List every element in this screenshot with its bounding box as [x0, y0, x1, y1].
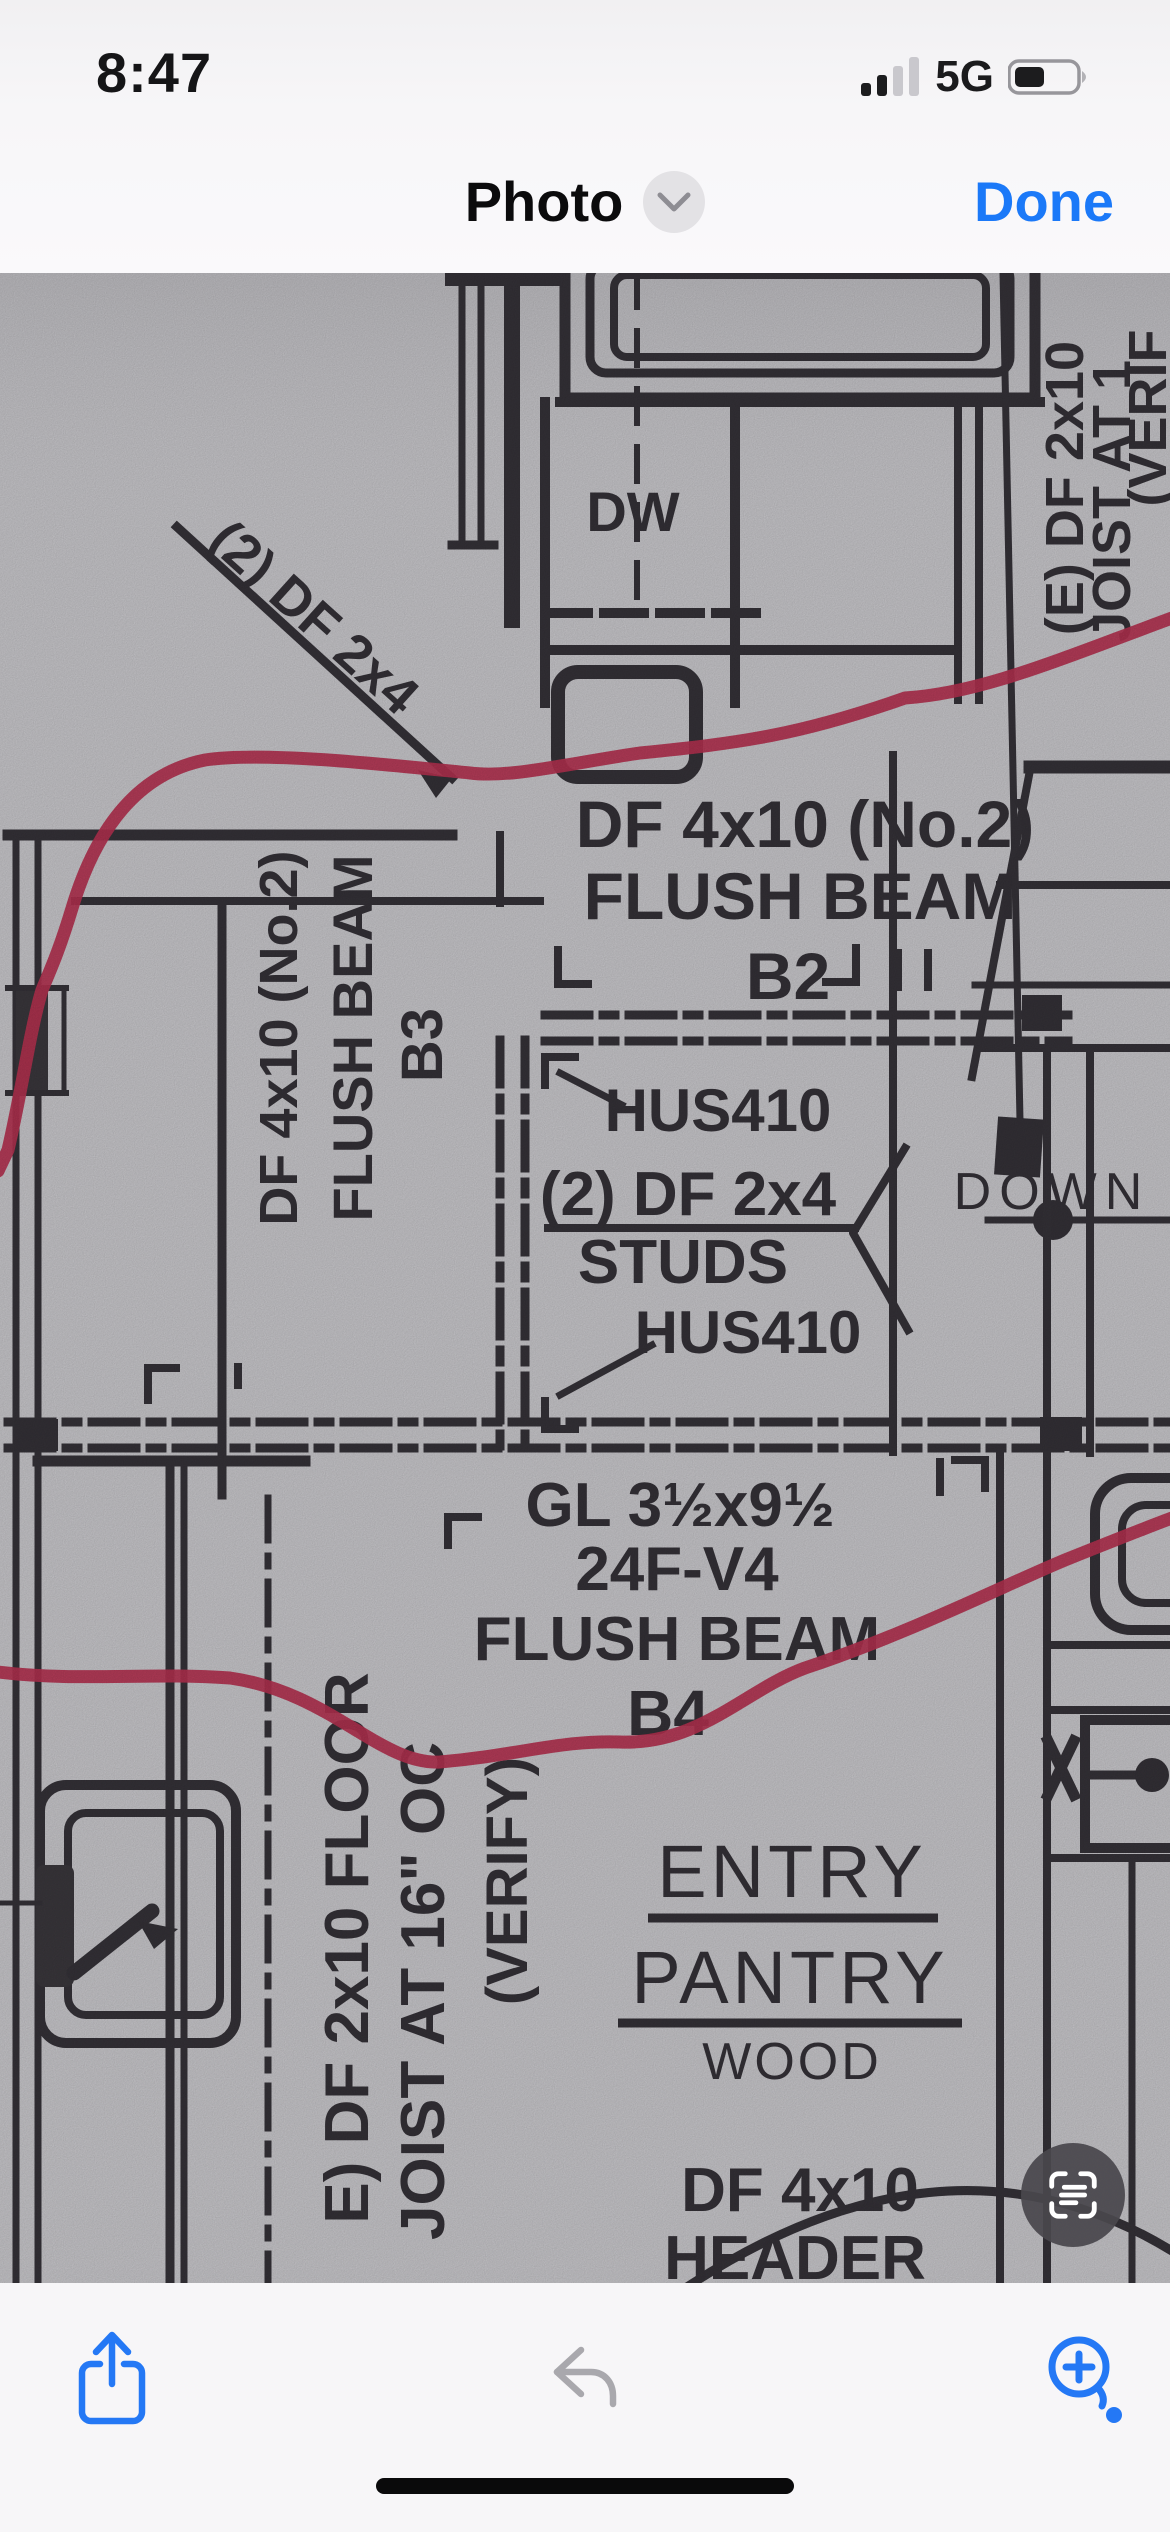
network-type-label: 5G [935, 52, 994, 102]
undo-arrow-icon [545, 2338, 625, 2418]
photo-canvas[interactable]: DW (2) DF 2x4 (E) DF 2x10 JOIST AT 1 (VE… [0, 273, 1170, 2283]
home-indicator[interactable] [376, 2478, 794, 2494]
top-bars: 8:47 5G Photo [0, 0, 1170, 273]
iphone-screen: 8:47 5G Photo [0, 0, 1170, 2532]
status-time: 8:47 [96, 40, 212, 105]
undo-button[interactable] [537, 2323, 633, 2433]
floor-plan-image: DW (2) DF 2x4 (E) DF 2x10 JOIST AT 1 (VE… [0, 273, 1170, 2283]
markup-zoom-button[interactable] [1037, 2323, 1133, 2433]
loupe-plus-icon [1043, 2331, 1127, 2425]
live-text-icon [1044, 2166, 1102, 2224]
chevron-down-icon [657, 191, 691, 213]
nav-bar: Photo Done [0, 130, 1170, 273]
battery-icon [1008, 55, 1098, 99]
page-title: Photo [465, 169, 624, 234]
live-text-button[interactable] [1021, 2143, 1125, 2247]
cellular-signal-icon [861, 55, 921, 99]
share-icon [71, 2328, 153, 2428]
photo-options-button[interactable] [643, 171, 705, 233]
bottom-toolbar [0, 2283, 1170, 2532]
done-button[interactable]: Done [974, 130, 1114, 273]
status-bar: 8:47 5G [0, 0, 1170, 130]
share-button[interactable] [64, 2323, 160, 2433]
photo-grain [0, 273, 1170, 2283]
